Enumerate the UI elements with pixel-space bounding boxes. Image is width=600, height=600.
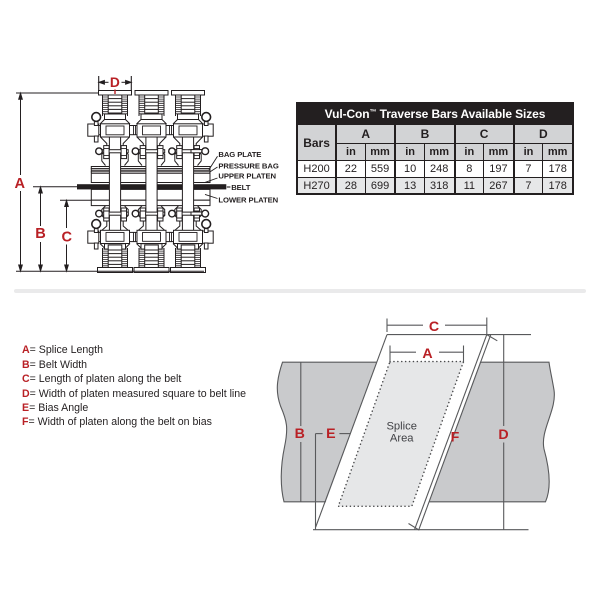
svg-text:A: A — [15, 176, 26, 192]
svg-text:UPPER PLATEN: UPPER PLATEN — [218, 172, 276, 181]
svg-text:A: A — [422, 346, 432, 362]
svg-text:B: B — [35, 226, 46, 242]
svg-text:BELT: BELT — [231, 183, 251, 192]
svg-text:C: C — [429, 319, 439, 335]
svg-text:D: D — [498, 427, 508, 443]
svg-text:Splice: Splice — [386, 420, 416, 432]
svg-text:D: D — [110, 75, 120, 90]
svg-text:B: B — [295, 426, 305, 442]
svg-text:Area: Area — [390, 432, 414, 444]
svg-text:E: E — [326, 426, 335, 442]
svg-text:LOWER PLATEN: LOWER PLATEN — [218, 196, 278, 205]
svg-text:F: F — [451, 429, 460, 445]
svg-text:PRESSURE BAG: PRESSURE BAG — [218, 161, 278, 170]
svg-text:BAG PLATE: BAG PLATE — [218, 150, 261, 159]
svg-text:C: C — [62, 230, 73, 246]
